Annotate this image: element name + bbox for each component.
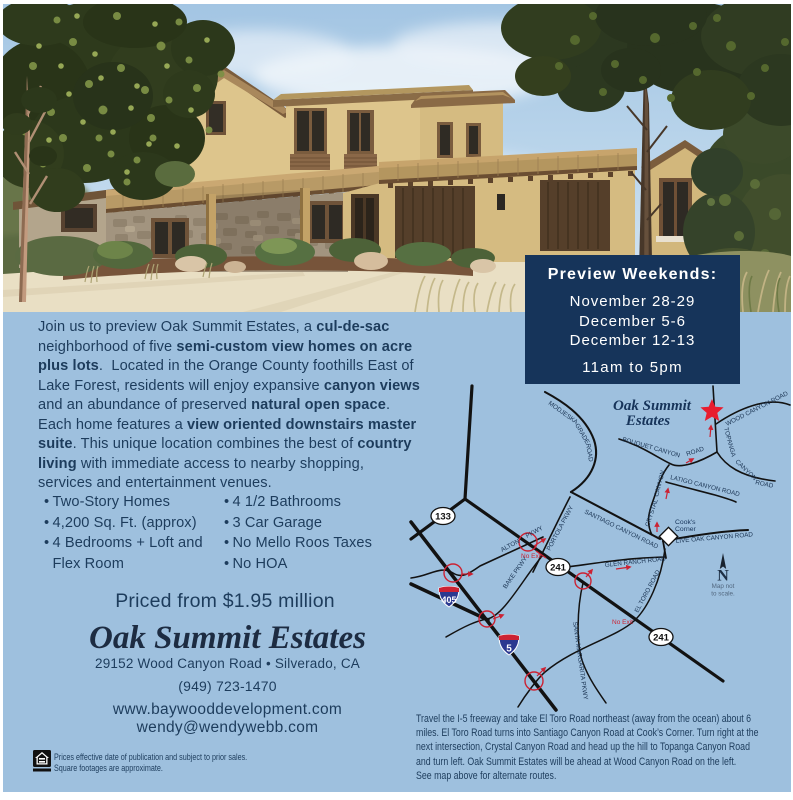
svg-text:No Exit: No Exit (612, 619, 633, 626)
svg-text:Estates: Estates (625, 413, 670, 429)
svg-text:BOUQUET CANYON: BOUQUET CANYON (621, 436, 681, 459)
svg-text:CANYON: CANYON (653, 469, 667, 497)
svg-text:ROAD: ROAD (685, 445, 705, 457)
svg-text:405: 405 (441, 595, 456, 605)
svg-text:N: N (717, 568, 729, 585)
svg-text:ROAD: ROAD (584, 443, 594, 463)
svg-text:WOOD CANYON ROAD: WOOD CANYON ROAD (725, 390, 790, 428)
svg-text:SANTA MARGARITA PKWY: SANTA MARGARITA PKWY (571, 621, 589, 701)
svg-text:Corner: Corner (675, 526, 697, 533)
svg-text:133: 133 (435, 512, 451, 523)
svg-text:BAKE PKWY: BAKE PKWY (502, 555, 529, 590)
svg-text:GRADE: GRADE (573, 423, 590, 446)
svg-text:PORTOLA PKWY: PORTOLA PKWY (546, 504, 576, 552)
svg-text:Oak Summit: Oak Summit (613, 398, 692, 414)
svg-text:Cook's: Cook's (675, 519, 696, 526)
svg-text:to scale.: to scale. (711, 591, 735, 598)
svg-text:TOPANGA: TOPANGA (722, 427, 737, 459)
svg-text:Map not: Map not (712, 583, 735, 590)
svg-text:5: 5 (506, 644, 512, 655)
svg-text:EL TORO ROAD: EL TORO ROAD (634, 569, 663, 614)
svg-text:241: 241 (653, 633, 670, 644)
svg-text:GLEN RANCH ROAD: GLEN RANCH ROAD (604, 556, 666, 569)
svg-text:241: 241 (550, 563, 567, 574)
